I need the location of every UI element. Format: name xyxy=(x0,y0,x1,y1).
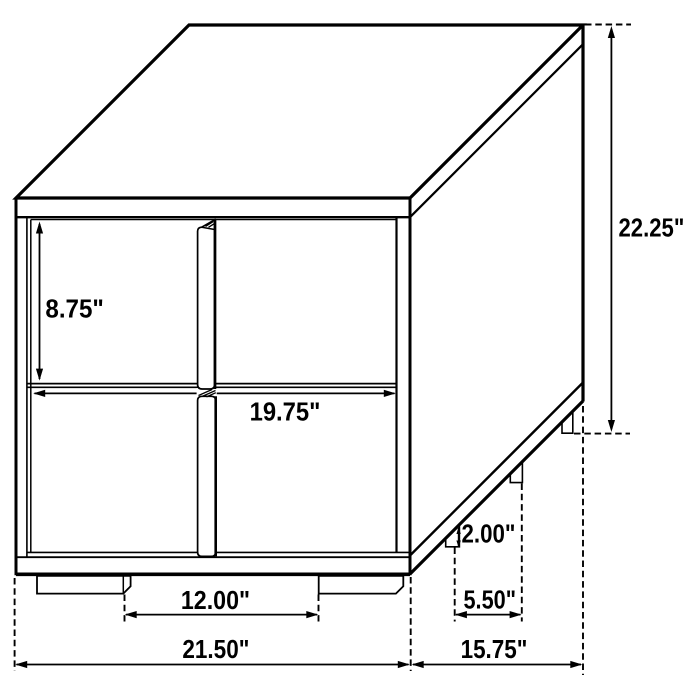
svg-text:19.75": 19.75" xyxy=(250,396,321,426)
svg-text:22.25": 22.25" xyxy=(619,213,685,243)
svg-text:21.50": 21.50" xyxy=(182,634,249,664)
svg-text:8.75": 8.75" xyxy=(45,294,104,324)
svg-text:5.50": 5.50" xyxy=(464,585,517,615)
svg-text:2.00": 2.00" xyxy=(462,519,516,549)
svg-text:12.00": 12.00" xyxy=(181,585,250,615)
svg-text:15.75": 15.75" xyxy=(461,634,528,664)
